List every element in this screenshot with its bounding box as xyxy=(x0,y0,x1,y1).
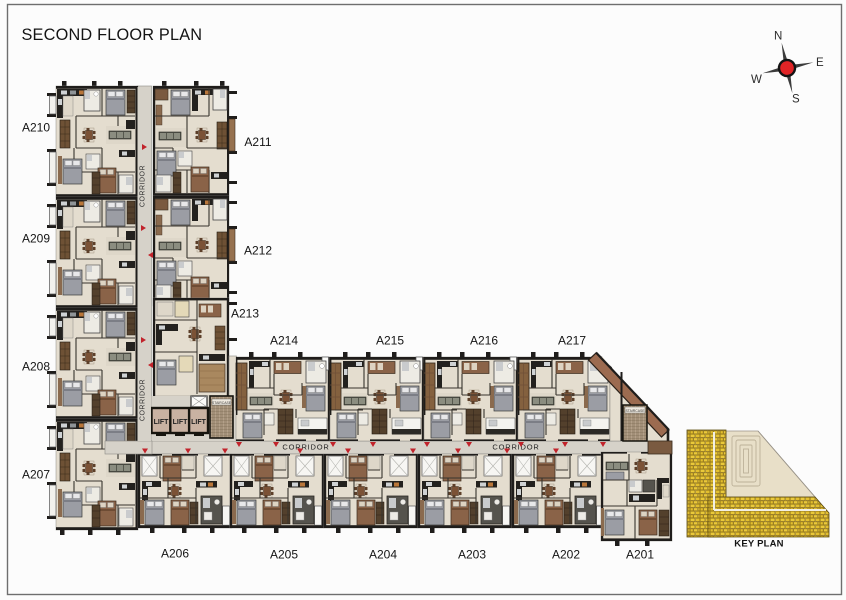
svg-text:KEY PLAN: KEY PLAN xyxy=(734,539,783,550)
svg-text:A215: A215 xyxy=(376,334,404,348)
svg-text:A201: A201 xyxy=(626,548,654,562)
svg-text:A209: A209 xyxy=(22,232,50,246)
svg-text:CORRIDOR: CORRIDOR xyxy=(492,443,539,452)
svg-text:A207: A207 xyxy=(22,468,50,482)
svg-text:A204: A204 xyxy=(369,548,397,562)
svg-text:S: S xyxy=(792,94,800,106)
svg-text:A216: A216 xyxy=(470,334,498,348)
svg-text:LIFT: LIFT xyxy=(154,419,169,426)
svg-text:A212: A212 xyxy=(244,244,272,258)
svg-text:LIFT: LIFT xyxy=(173,419,188,426)
svg-text:LIFT: LIFT xyxy=(191,419,206,426)
svg-text:A214: A214 xyxy=(270,334,298,348)
svg-text:CORRIDOR: CORRIDOR xyxy=(140,379,147,421)
svg-text:A202: A202 xyxy=(552,548,580,562)
svg-text:N: N xyxy=(774,31,782,43)
svg-text:A205: A205 xyxy=(270,548,298,562)
svg-text:A208: A208 xyxy=(22,360,50,374)
svg-text:E: E xyxy=(816,57,824,69)
svg-text:CORRIDOR: CORRIDOR xyxy=(282,443,329,452)
svg-text:W: W xyxy=(751,74,762,86)
svg-text:A203: A203 xyxy=(458,548,486,562)
svg-text:A211: A211 xyxy=(244,135,271,149)
svg-text:A213: A213 xyxy=(231,307,259,321)
svg-text:SECOND FLOOR PLAN: SECOND FLOOR PLAN xyxy=(22,26,203,44)
svg-text:A206: A206 xyxy=(161,547,189,561)
svg-text:STAIRCASE: STAIRCASE xyxy=(626,409,646,413)
svg-text:A210: A210 xyxy=(22,121,50,135)
svg-text:A217: A217 xyxy=(558,334,586,348)
svg-text:CORRIDOR: CORRIDOR xyxy=(140,165,147,207)
svg-text:STAIRCASE: STAIRCASE xyxy=(212,401,232,405)
